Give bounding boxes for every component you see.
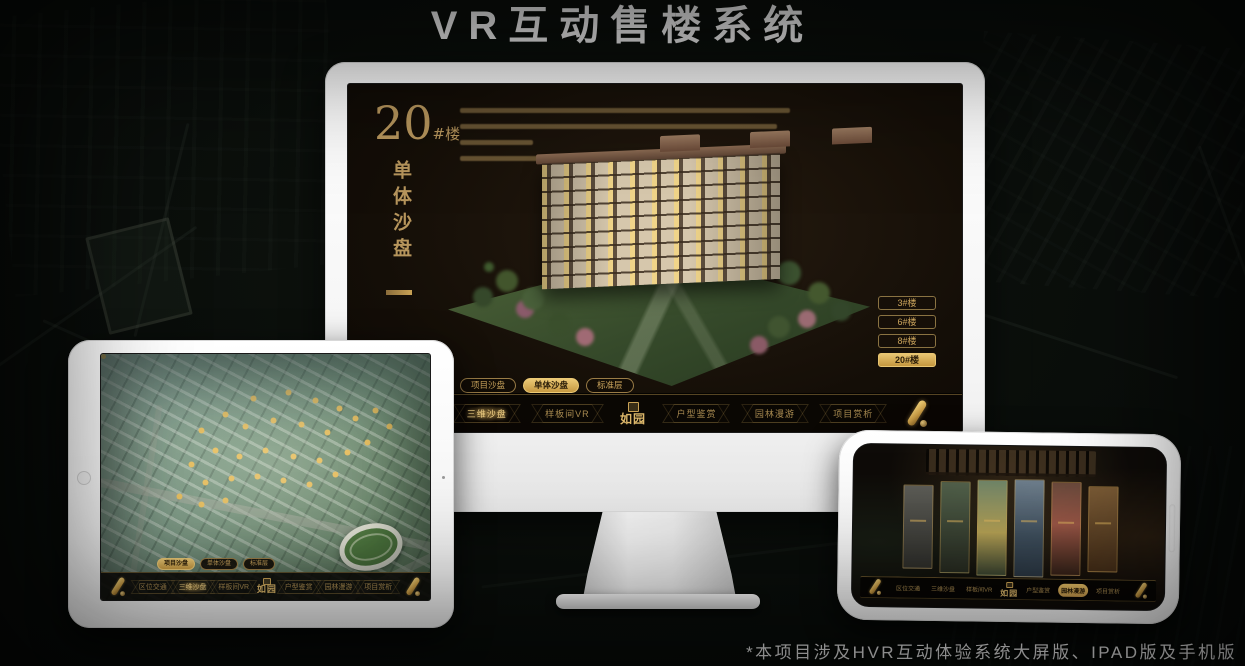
building-heading: 20#楼 [374, 100, 460, 146]
nav-item-garden-tour[interactable]: 园林漫游 [320, 579, 356, 595]
tablet-tab-group: 项目沙盘 单体沙盘 标准层 [157, 558, 275, 570]
brand-logo: 如园 [1000, 581, 1018, 596]
nav-item-project-gallery[interactable]: 项目赏析 [825, 403, 881, 424]
building-model-3d[interactable] [444, 142, 874, 392]
nav-item-garden-tour[interactable]: 园林漫游 [1058, 583, 1088, 596]
tab-standard-floor[interactable]: 标准层 [586, 378, 634, 393]
tab-project-sandtable[interactable]: 项目沙盘 [460, 378, 516, 393]
nav-item-showroom-vr[interactable]: 样板间VR [963, 582, 996, 595]
floor-button-20[interactable]: 20#楼 [878, 353, 936, 367]
nav-item-floorplans[interactable]: 户型鉴赏 [1023, 583, 1053, 596]
pergola-roof [926, 449, 1096, 477]
gallery-panel[interactable] [1050, 482, 1081, 576]
subtitle-rule [386, 290, 412, 295]
nav-item-floorplans[interactable]: 户型鉴赏 [281, 579, 317, 595]
model-roof-tower [832, 127, 872, 145]
brand-logo-text: 如园 [257, 586, 277, 595]
floor-button-3[interactable]: 3#楼 [878, 296, 936, 310]
building-number-suffix: #楼 [433, 125, 461, 143]
nav-item-3d-sandtable[interactable]: 三维沙盘 [928, 581, 958, 594]
nav-item-showroom-vr[interactable]: 样板间VR [537, 403, 598, 424]
tablet-home-button[interactable] [77, 471, 91, 485]
nav-item-3d-sandtable[interactable]: 三维沙盘 [175, 579, 211, 595]
tab-single-sandtable[interactable]: 单体沙盘 [200, 558, 238, 570]
gallery-panel[interactable] [976, 480, 1007, 576]
monitor-stand [583, 512, 733, 598]
monitor-stand-base [556, 594, 760, 609]
gallery-panel[interactable] [902, 485, 933, 569]
brand-logo-text: 如园 [1000, 588, 1018, 596]
background-road-line [1198, 146, 1245, 335]
nav-item-location[interactable]: 区位交通 [893, 581, 923, 594]
gallery-panel[interactable] [1013, 479, 1044, 577]
nav-item-showroom-vr[interactable]: 样板间VR [214, 579, 253, 595]
nav-item-location[interactable]: 区位交通 [135, 579, 171, 595]
nav-item-3d-sandtable[interactable]: 三维沙盘 [459, 403, 515, 424]
background-map-texture [967, 31, 1245, 299]
page-title: VR互动售楼系统 [0, 0, 1245, 52]
nav-item-floorplans[interactable]: 户型鉴赏 [668, 403, 724, 424]
seal-icon [263, 578, 271, 585]
scroll-icon[interactable] [404, 576, 422, 597]
tablet-nav-bar: 区位交通 三维沙盘 样板间VR 如园 户型鉴赏 园林漫游 项目赏析 [101, 572, 430, 600]
gallery-panel[interactable] [939, 481, 970, 573]
background-sign-frame [85, 217, 193, 335]
brand-logo: 如园 [620, 402, 646, 425]
seal-icon [1006, 581, 1013, 587]
tab-single-sandtable[interactable]: 单体沙盘 [523, 378, 579, 393]
sandtable-tab-group: 项目沙盘 单体沙盘 标准层 [460, 378, 634, 393]
phone-nav-bar: 区位交通 三维沙盘 样板间VR 如园 户型鉴赏 园林漫游 项目赏析 [860, 576, 1156, 602]
gallery-panel[interactable] [1087, 486, 1118, 572]
building-number: 20 [374, 96, 433, 150]
tablet-screen: 项目沙盘 单体沙盘 标准层 区位交通 三维沙盘 样板间VR 如园 户型鉴赏 园林… [100, 353, 431, 601]
promo-canvas: VR互动售楼系统 20#楼 单体沙盘 [0, 0, 1245, 666]
floor-button-group: 3#楼 6#楼 8#楼 20#楼 [878, 296, 936, 367]
footnote-text: *本项目涉及HVR互动体验系统大屏版、IPAD版及手机版 [746, 638, 1237, 663]
model-roof-tower [660, 134, 700, 152]
nav-item-project-gallery[interactable]: 项目赏析 [1093, 584, 1123, 597]
scroll-icon[interactable] [904, 399, 930, 429]
brand-logo: 如园 [257, 578, 277, 595]
phone-notch [1169, 504, 1176, 552]
tab-project-sandtable[interactable]: 项目沙盘 [157, 558, 195, 570]
phone-screen: 区位交通 三维沙盘 样板间VR 如园 户型鉴赏 园林漫游 项目赏析 [851, 443, 1167, 611]
background-road-line [133, 123, 189, 337]
seal-icon [628, 402, 639, 412]
scroll-icon[interactable] [109, 576, 127, 597]
nav-item-garden-tour[interactable]: 园林漫游 [747, 403, 803, 424]
tablet-camera-dot [442, 476, 445, 479]
nav-item-project-gallery[interactable]: 项目赏析 [360, 579, 396, 595]
tablet-device: 项目沙盘 单体沙盘 标准层 区位交通 三维沙盘 样板间VR 如园 户型鉴赏 园林… [68, 340, 454, 628]
phone-device: 区位交通 三维沙盘 样板间VR 如园 户型鉴赏 园林漫游 项目赏析 [837, 430, 1182, 625]
scroll-icon[interactable] [1133, 582, 1149, 600]
scroll-icon[interactable] [867, 578, 883, 596]
brand-logo-text: 如园 [620, 413, 646, 425]
model-building [542, 153, 780, 289]
screen-subtitle: 单体沙盘 [388, 160, 415, 264]
floor-button-6[interactable]: 6#楼 [878, 315, 936, 329]
tab-standard-floor[interactable]: 标准层 [243, 558, 275, 570]
scene-gallery [902, 475, 1123, 582]
model-trees [484, 262, 494, 272]
floor-button-8[interactable]: 8#楼 [878, 334, 936, 348]
model-roof-tower [750, 130, 790, 148]
